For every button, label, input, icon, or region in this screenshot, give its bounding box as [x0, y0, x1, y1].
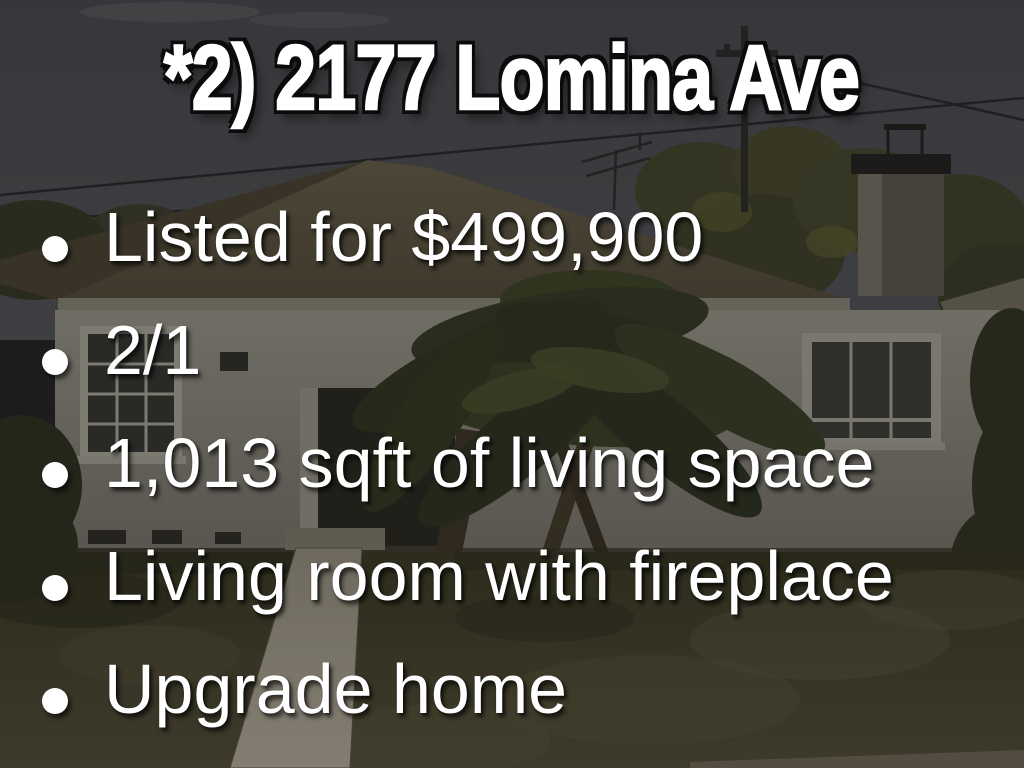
- bullet-text: Living room with fireplace: [104, 537, 894, 615]
- bullet-item: Listed for $499,900: [42, 198, 894, 276]
- bullet-item: 1,013 sqft of living space: [42, 424, 894, 502]
- bullet-dot-icon: [42, 688, 68, 714]
- bullet-dot-icon: [42, 236, 68, 262]
- bullet-text: Listed for $499,900: [104, 198, 703, 276]
- slide-title-text: *2) 2177 Lomina Ave: [164, 28, 859, 128]
- bullet-list: Listed for $499,900 2/1 1,013 sqft of li…: [42, 198, 894, 763]
- bullet-item: Upgrade home: [42, 650, 894, 728]
- bullet-dot-icon: [42, 349, 68, 375]
- bullet-text: 2/1: [104, 311, 201, 389]
- presentation-slide: *2) 2177 Lomina Ave Listed for $499,900 …: [0, 0, 1024, 768]
- bullet-dot-icon: [42, 575, 68, 601]
- bullet-item: Living room with fireplace: [42, 537, 894, 615]
- bullet-dot-icon: [42, 462, 68, 488]
- bullet-text: 1,013 sqft of living space: [104, 424, 874, 502]
- slide-title: *2) 2177 Lomina Ave: [0, 28, 1024, 128]
- bullet-text: Upgrade home: [104, 650, 567, 728]
- bullet-item: 2/1: [42, 311, 894, 389]
